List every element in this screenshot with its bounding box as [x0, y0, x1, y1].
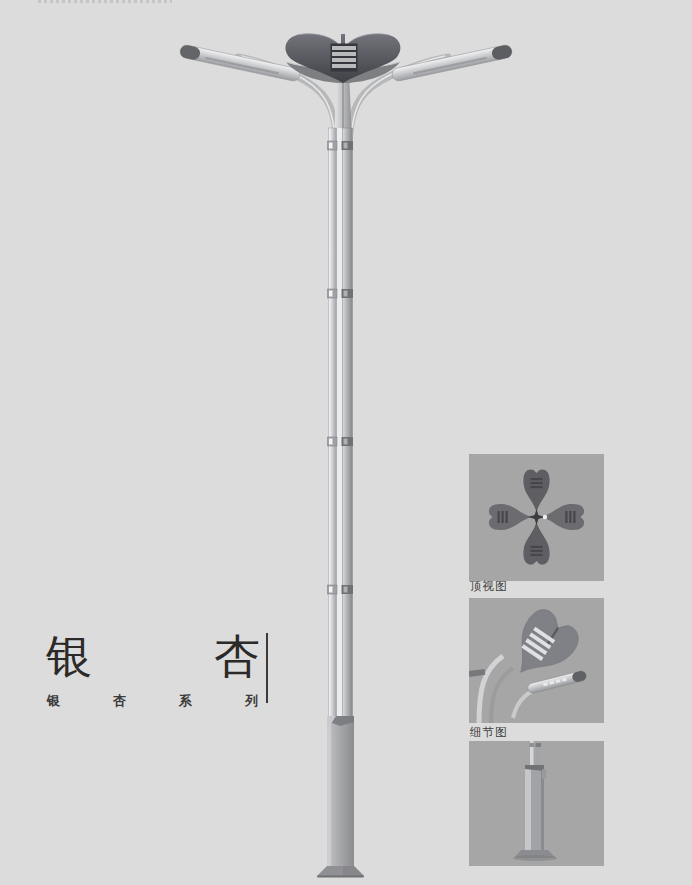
detail-view-image	[469, 598, 604, 723]
lamp-head-left	[179, 44, 301, 82]
lamp-base	[317, 716, 364, 878]
detail-view-label: 细节图	[470, 725, 508, 740]
thumbnail-detail-view	[469, 598, 604, 723]
product-title: 银杏	[46, 631, 382, 682]
crown-louvers	[331, 44, 358, 72]
product-series-subtitle: 银杏系列	[47, 692, 311, 710]
top-view-image	[469, 454, 604, 581]
thumbnail-top-view	[469, 454, 604, 581]
catalog-page: 银杏 银杏系列 顶视图	[0, 0, 692, 885]
thumbnail-base-view	[469, 741, 604, 866]
base-view-image	[469, 741, 604, 866]
top-view-label: 顶视图	[470, 579, 508, 594]
lamp-head-right	[391, 44, 513, 82]
